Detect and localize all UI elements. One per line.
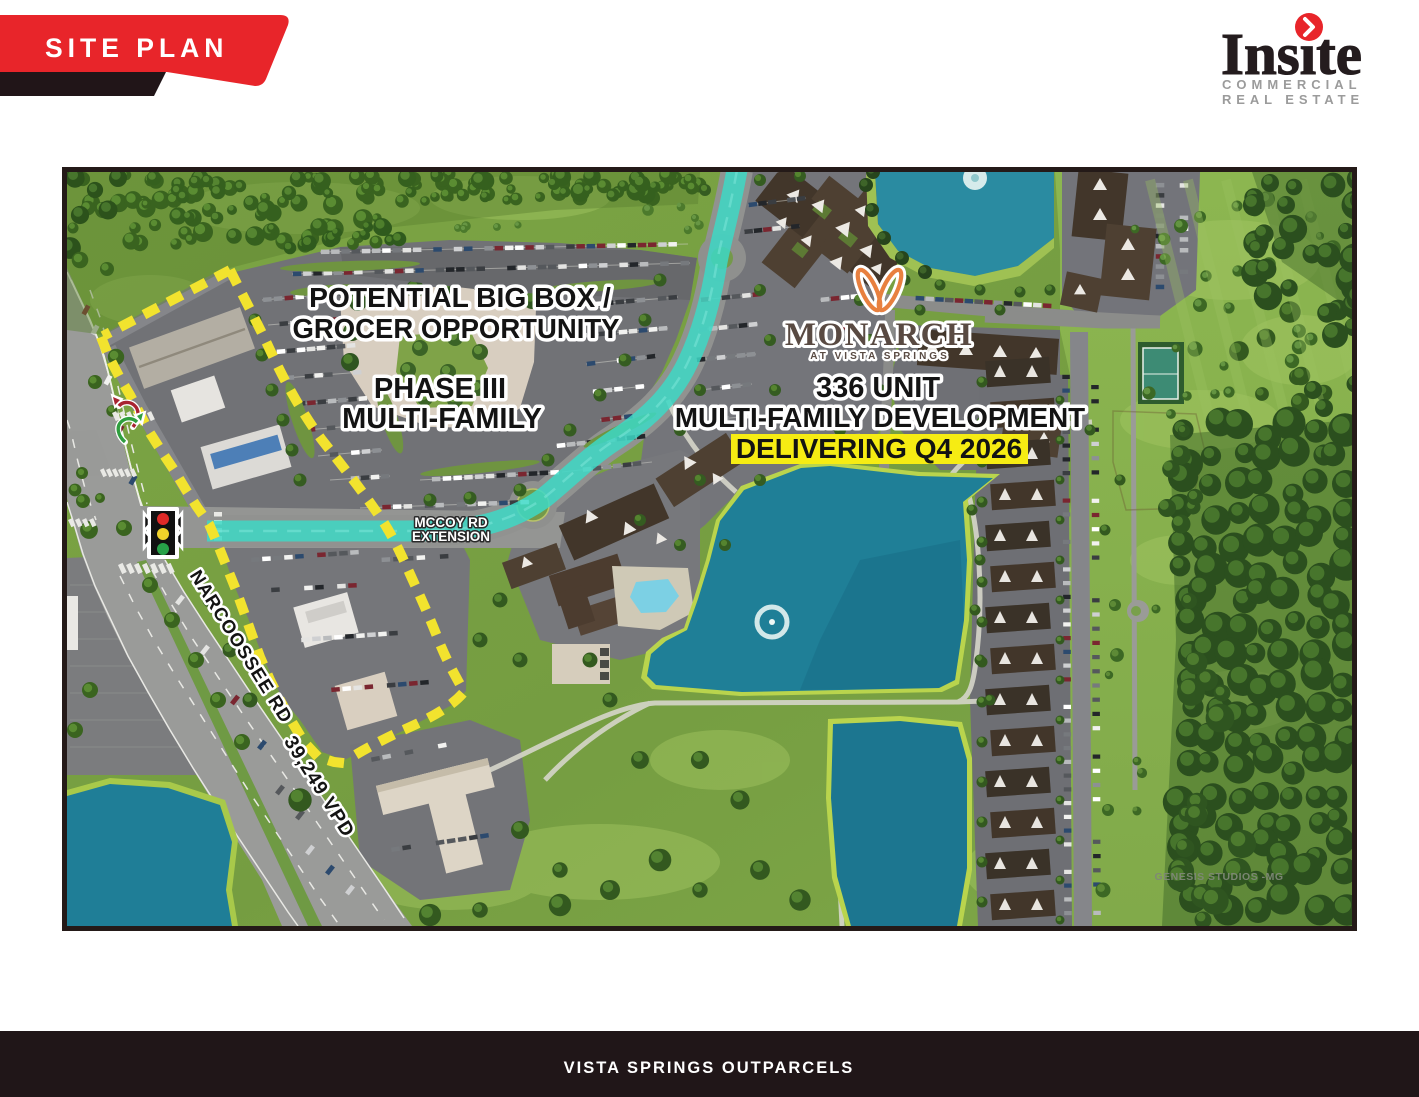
- svg-text:POTENTIAL BIG BOX /: POTENTIAL BIG BOX /: [309, 281, 611, 313]
- svg-text:AT VISTA SPRINGS: AT VISTA SPRINGS: [810, 351, 950, 362]
- svg-text:MULTI-FAMILY: MULTI-FAMILY: [342, 403, 542, 435]
- svg-text:REAL ESTATE: REAL ESTATE: [1222, 92, 1364, 107]
- svg-text:MCCOY RD: MCCOY RD: [414, 515, 488, 530]
- svg-text:MONARCH: MONARCH: [785, 317, 973, 353]
- svg-text:VISTA SPRINGS OUTPARCELS: VISTA SPRINGS OUTPARCELS: [564, 1059, 855, 1077]
- svg-text:336 UNIT: 336 UNIT: [816, 372, 940, 404]
- svg-text:MULTI-FAMILY DEVELOPMENT: MULTI-FAMILY DEVELOPMENT: [675, 402, 1085, 433]
- svg-text:DELIVERING Q4 2026: DELIVERING Q4 2026: [736, 433, 1022, 464]
- svg-text:PHASE III: PHASE III: [374, 373, 506, 405]
- svg-text:SITE PLAN: SITE PLAN: [45, 33, 228, 63]
- svg-text:GROCER OPPORTUNITY: GROCER OPPORTUNITY: [293, 313, 620, 344]
- svg-text:GENESIS STUDIOS -MG: GENESIS STUDIOS -MG: [1154, 871, 1283, 883]
- svg-text:COMMERCIAL: COMMERCIAL: [1222, 77, 1362, 92]
- svg-text:EXTENSION: EXTENSION: [412, 529, 490, 544]
